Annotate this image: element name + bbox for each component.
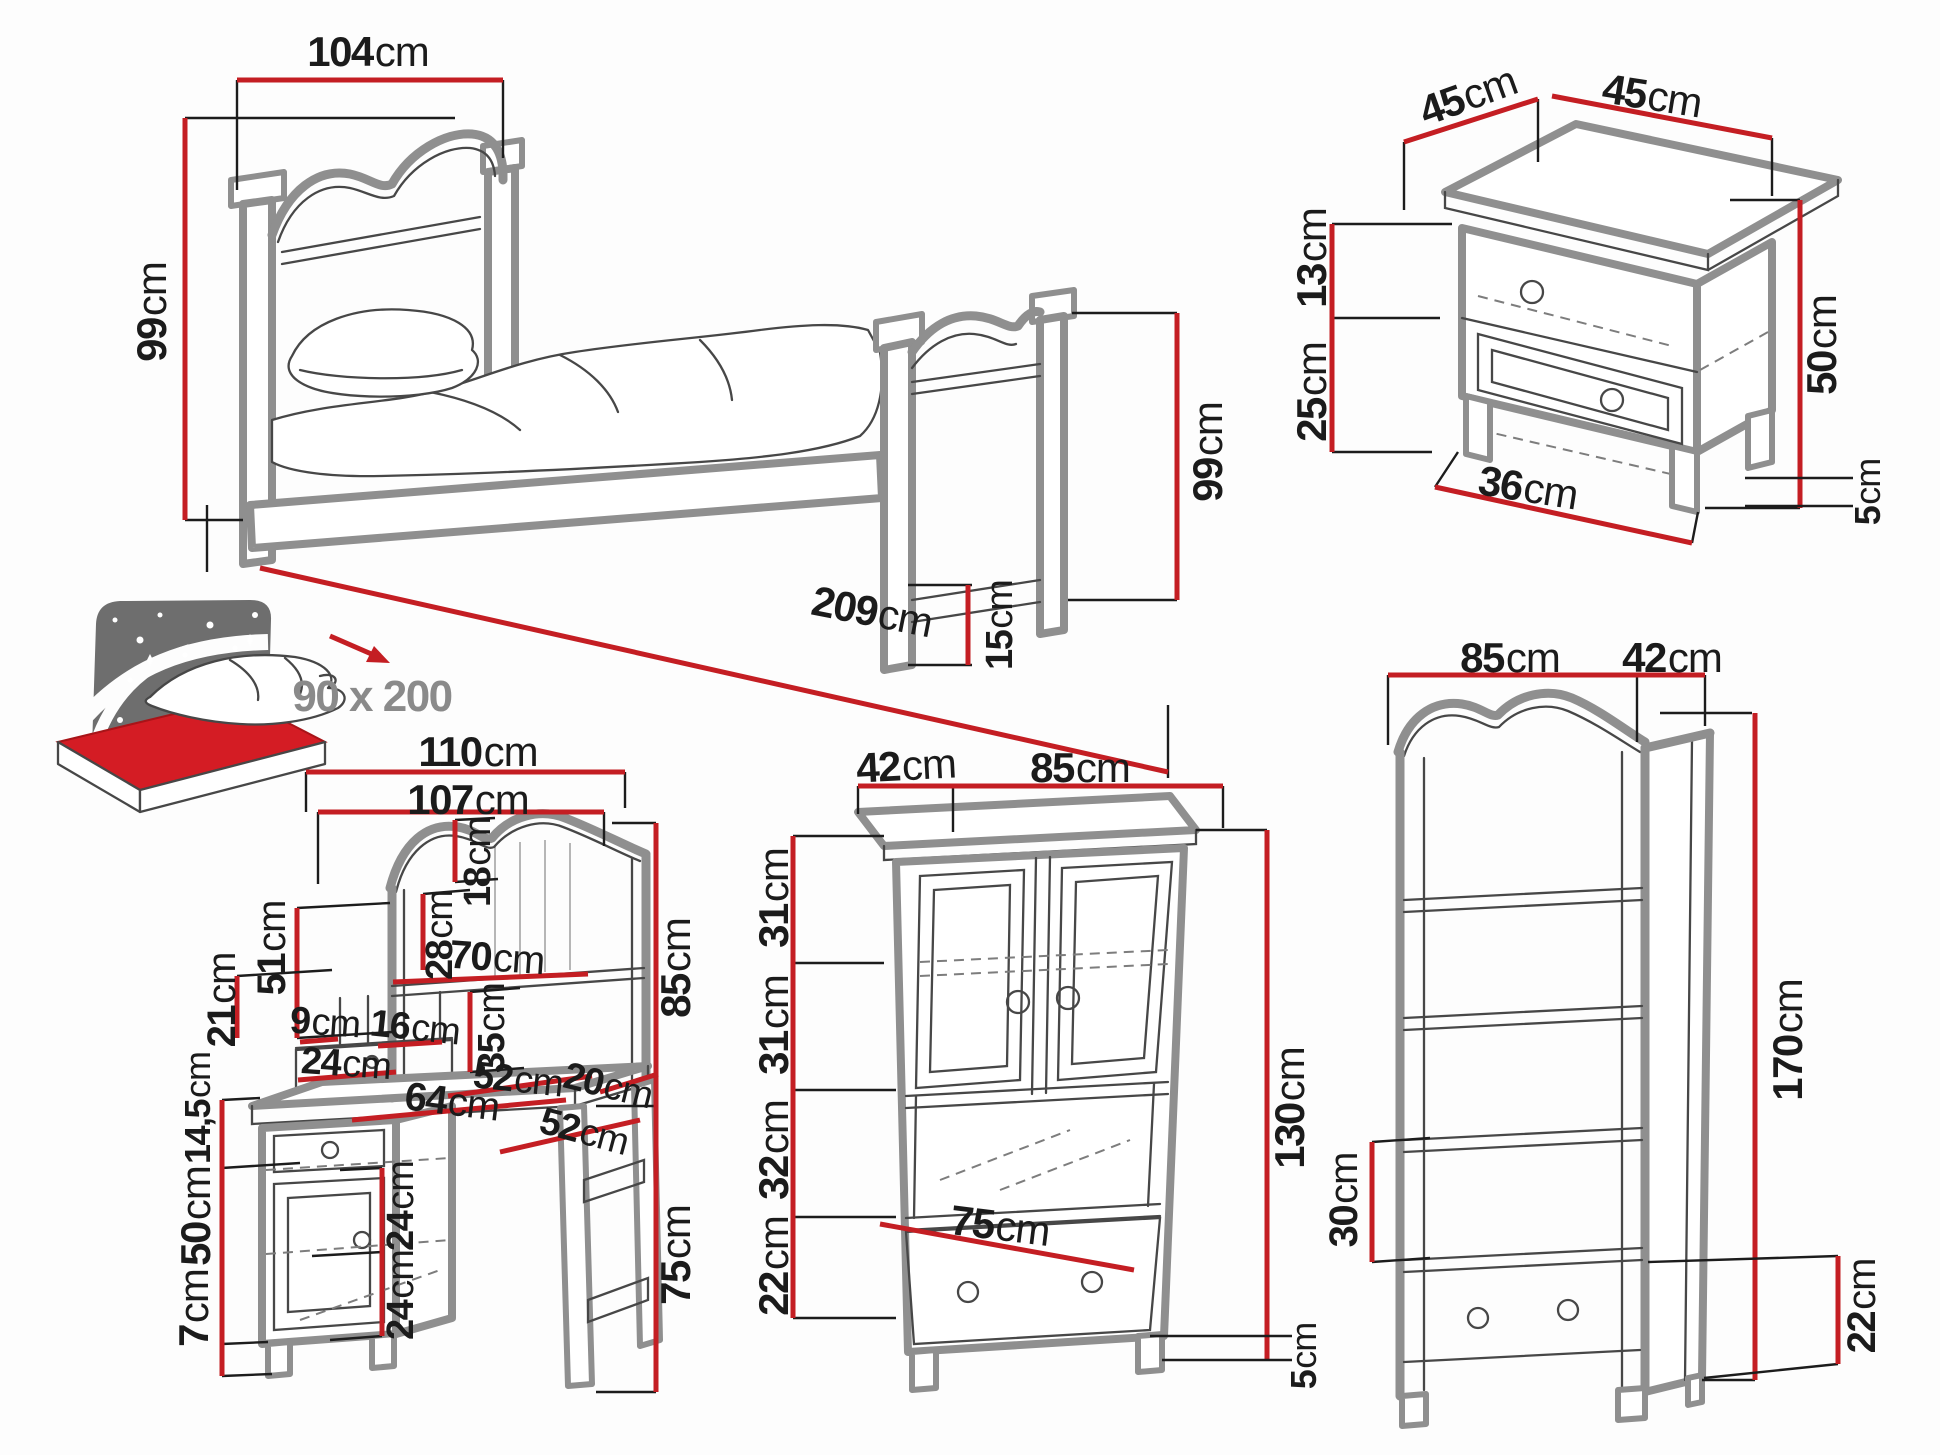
dim-label-nightstand-25cm: 25cm (1291, 342, 1333, 442)
dim-label-desk-52cm: 52cm (536, 1102, 633, 1162)
dim-label-bookcase-22cm: 22cm (1842, 1259, 1882, 1354)
dim-label-desk-24cm: 24cm (382, 1250, 420, 1340)
dim-label-bed-99cm: 99cm (1187, 402, 1229, 502)
dim-label-bed-90x200: 90 x 200 (292, 675, 451, 719)
dim-label-nightstand-13cm: 13cm (1291, 208, 1333, 308)
dim-label-desk-18cm: 18cm (459, 817, 497, 907)
dim-label-nightstand-45cm: 45cm (1599, 67, 1704, 124)
dim-label-cabinet-22cm: 22cm (753, 1216, 795, 1316)
dim-label-cabinet-75cm: 75cm (948, 1199, 1052, 1253)
dim-label-desk-75cm: 75cm (655, 1205, 697, 1305)
dim-label-bookcase-85cm: 85cm (1460, 637, 1560, 679)
dim-label-desk-70cm: 70cm (448, 935, 545, 982)
dim-label-bed-15cm: 15cm (981, 580, 1019, 670)
dim-label-desk-20cm: 20cm (560, 1057, 656, 1116)
dim-label-nightstand-50cm: 50cm (1801, 295, 1843, 395)
dim-label-desk-64cm: 64cm (403, 1076, 502, 1127)
dim-label-bookcase-170cm: 170cm (1767, 979, 1809, 1101)
dim-label-bookcase-42cm: 42cm (1622, 637, 1722, 679)
dim-label-desk-110cm: 110cm (418, 731, 537, 773)
dim-label-desk-145cm: 14,5cm (180, 1052, 216, 1164)
dim-label-desk-50cm: 50cm (175, 1166, 217, 1266)
dim-label-cabinet-31cm: 31cm (753, 848, 795, 948)
dim-label-bed-99cm: 99cm (131, 262, 173, 362)
dim-label-cabinet-31cm: 31cm (753, 975, 795, 1075)
dim-label-desk-21cm: 21cm (202, 953, 242, 1048)
dim-label-desk-51cm: 51cm (252, 901, 292, 996)
dim-label-desk-24cm: 24cm (382, 1161, 420, 1251)
dim-label-desk-85cm: 85cm (655, 918, 697, 1018)
dim-label-cabinet-42cm: 42cm (855, 742, 957, 789)
dim-label-desk-7cm: 7cm (173, 1269, 215, 1347)
dimension-labels: 104cm99cm99cm209cm15cm90 x 20045cm45cm13… (0, 0, 1940, 1455)
dim-label-bookcase-30cm: 30cm (1324, 1153, 1364, 1248)
dim-label-nightstand-45cm: 45cm (1414, 59, 1522, 133)
dim-label-cabinet-85cm: 85cm (1030, 747, 1130, 789)
dim-label-cabinet-130cm: 130cm (1269, 1047, 1311, 1169)
dim-label-bed-209cm: 209cm (808, 580, 935, 644)
dim-label-nightstand-36cm: 36cm (1475, 459, 1580, 516)
diagram-canvas: 104cm99cm99cm209cm15cm90 x 20045cm45cm13… (0, 0, 1940, 1455)
dim-label-cabinet-5cm: 5cm (1286, 1323, 1322, 1390)
dim-label-nightstand-5cm: 5cm (1850, 459, 1886, 526)
dim-label-desk-9cm: 9cm (289, 1002, 362, 1045)
dim-label-cabinet-32cm: 32cm (753, 1100, 795, 1200)
dim-label-bed-104cm: 104cm (307, 31, 429, 73)
dim-label-desk-24cm: 24cm (300, 1042, 392, 1086)
dim-label-desk-107cm: 107cm (407, 779, 529, 821)
